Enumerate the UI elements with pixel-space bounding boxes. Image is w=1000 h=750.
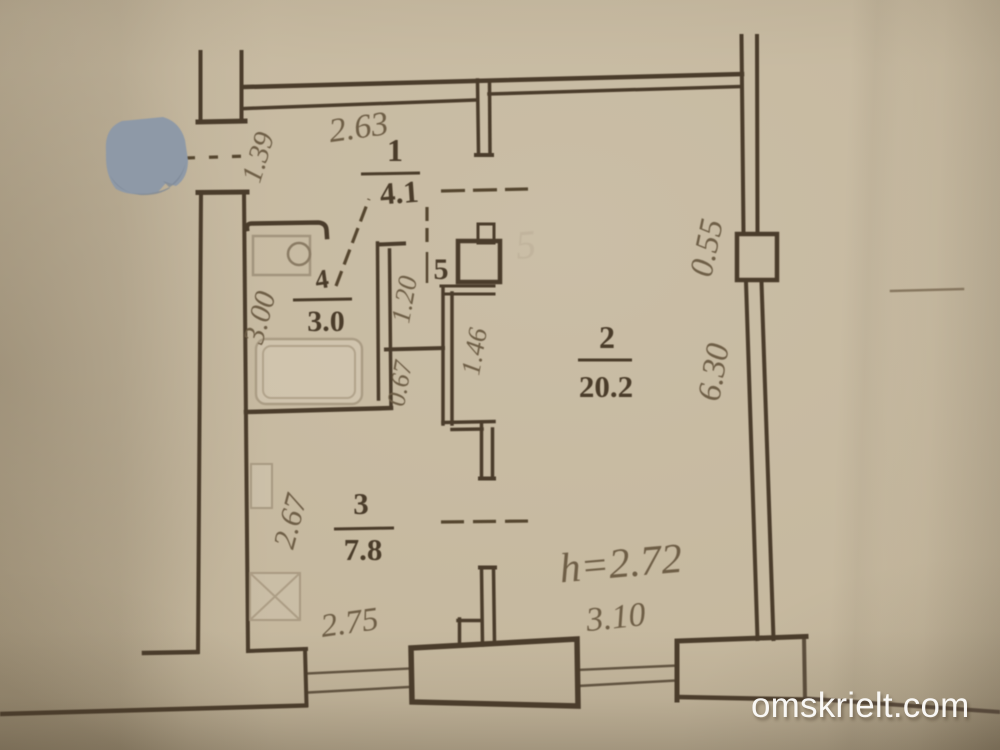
svg-text:4.1: 4.1 <box>379 174 420 212</box>
svg-text:5: 5 <box>434 253 449 286</box>
svg-text:6.30: 6.30 <box>691 340 737 404</box>
svg-text:3.10: 3.10 <box>583 596 647 639</box>
svg-text:2.75: 2.75 <box>319 601 381 645</box>
svg-text:1.39: 1.39 <box>236 128 282 186</box>
svg-text:2: 2 <box>599 319 615 355</box>
svg-text:2.63: 2.63 <box>327 105 391 150</box>
svg-text:0.55: 0.55 <box>684 216 731 280</box>
svg-text:1.46: 1.46 <box>455 325 493 377</box>
svg-text:3.0: 3.0 <box>307 305 345 338</box>
svg-text:0.67: 0.67 <box>381 358 418 409</box>
svg-text:2.67: 2.67 <box>266 489 314 552</box>
svg-text:7.8: 7.8 <box>344 532 383 567</box>
svg-text:20.2: 20.2 <box>579 369 633 404</box>
svg-text:5: 5 <box>514 221 538 268</box>
svg-text:h=2.72: h=2.72 <box>558 536 684 593</box>
svg-text:4: 4 <box>313 263 331 295</box>
svg-text:3: 3 <box>353 486 369 521</box>
